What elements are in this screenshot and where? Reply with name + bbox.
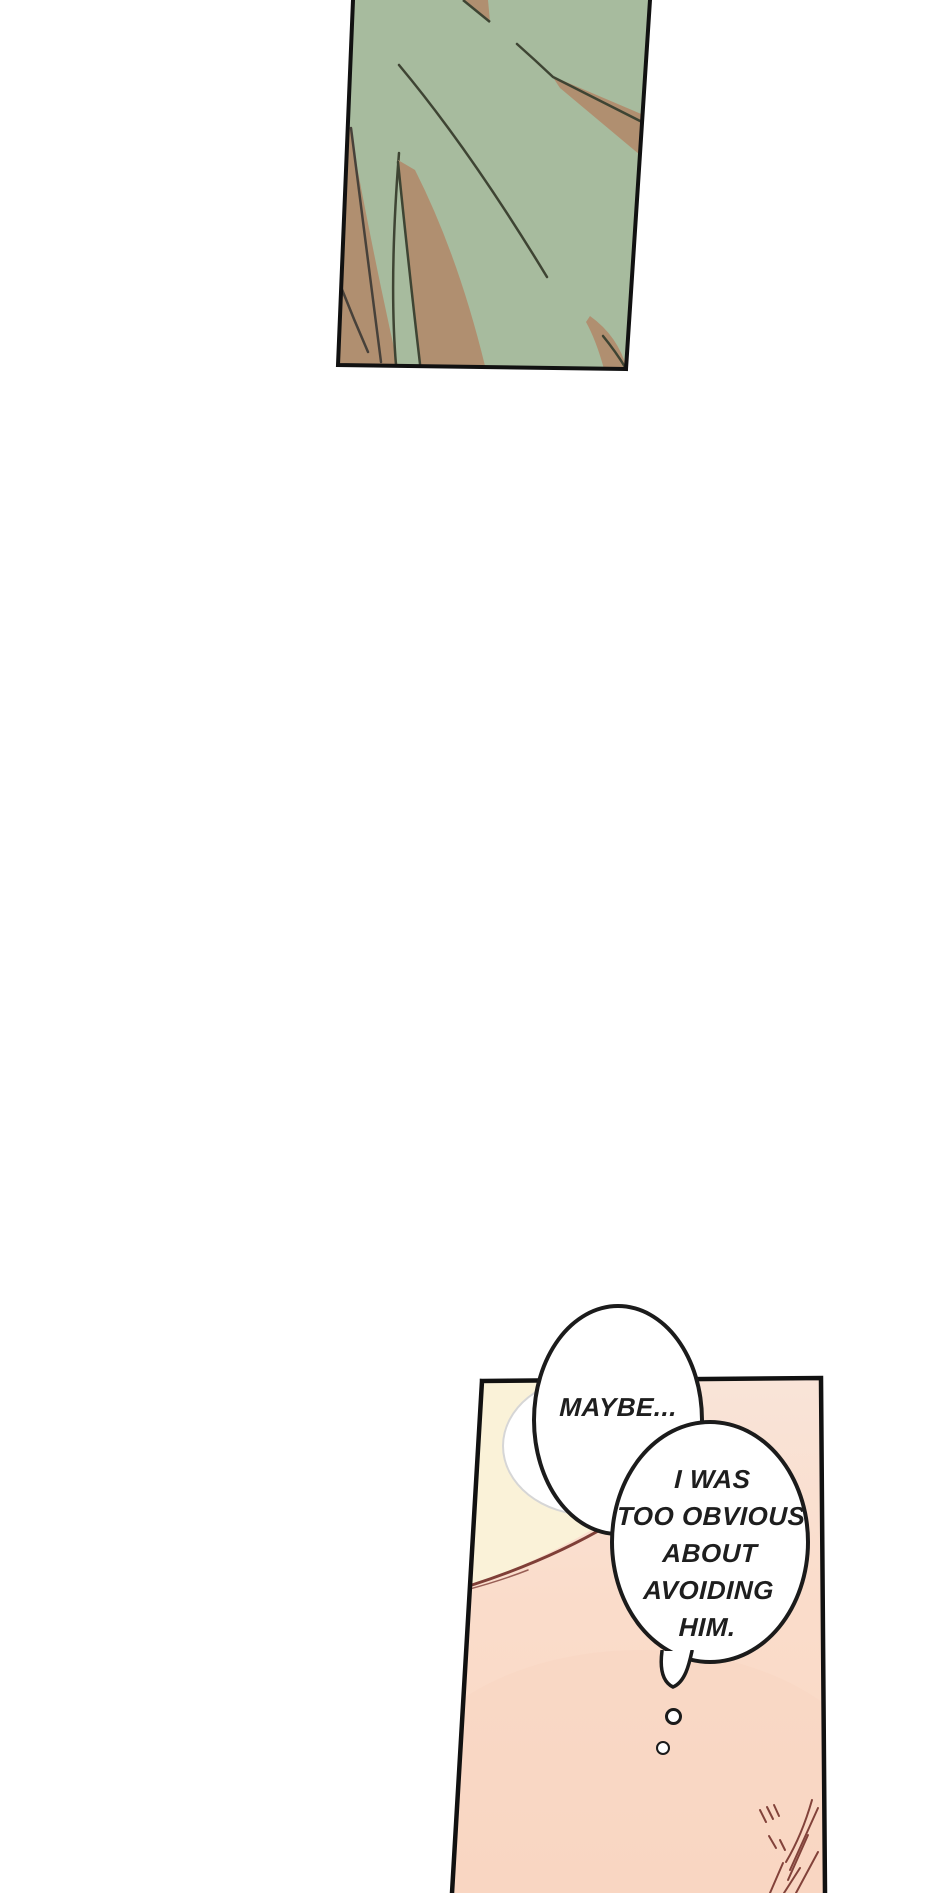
thought-line-5: HIM. bbox=[678, 1612, 736, 1642]
thought-line-2: TOO OBVIOUS bbox=[616, 1501, 806, 1531]
foliage-panel bbox=[320, 0, 670, 380]
thought-trail-circle-2 bbox=[656, 1741, 670, 1755]
comic-page: MAYBE... I WAS TOO OBVIOUS ABOUT AVOIDIN… bbox=[0, 0, 940, 1893]
bubble-tail bbox=[658, 1650, 698, 1698]
thought-bubble-2-text: I WAS TOO OBVIOUS ABOUT AVOIDING HIM. bbox=[612, 1439, 808, 1646]
bedding-shading bbox=[440, 1650, 840, 1893]
thought-line-3: ABOUT bbox=[662, 1538, 758, 1568]
thought-bubble-2: I WAS TOO OBVIOUS ABOUT AVOIDING HIM. bbox=[610, 1420, 810, 1664]
thought-line-1: I WAS bbox=[674, 1464, 751, 1494]
bubble-tail-shape bbox=[661, 1651, 692, 1687]
thought-line-4: AVOIDING bbox=[642, 1575, 774, 1605]
thought-trail-circle-1 bbox=[665, 1708, 682, 1725]
